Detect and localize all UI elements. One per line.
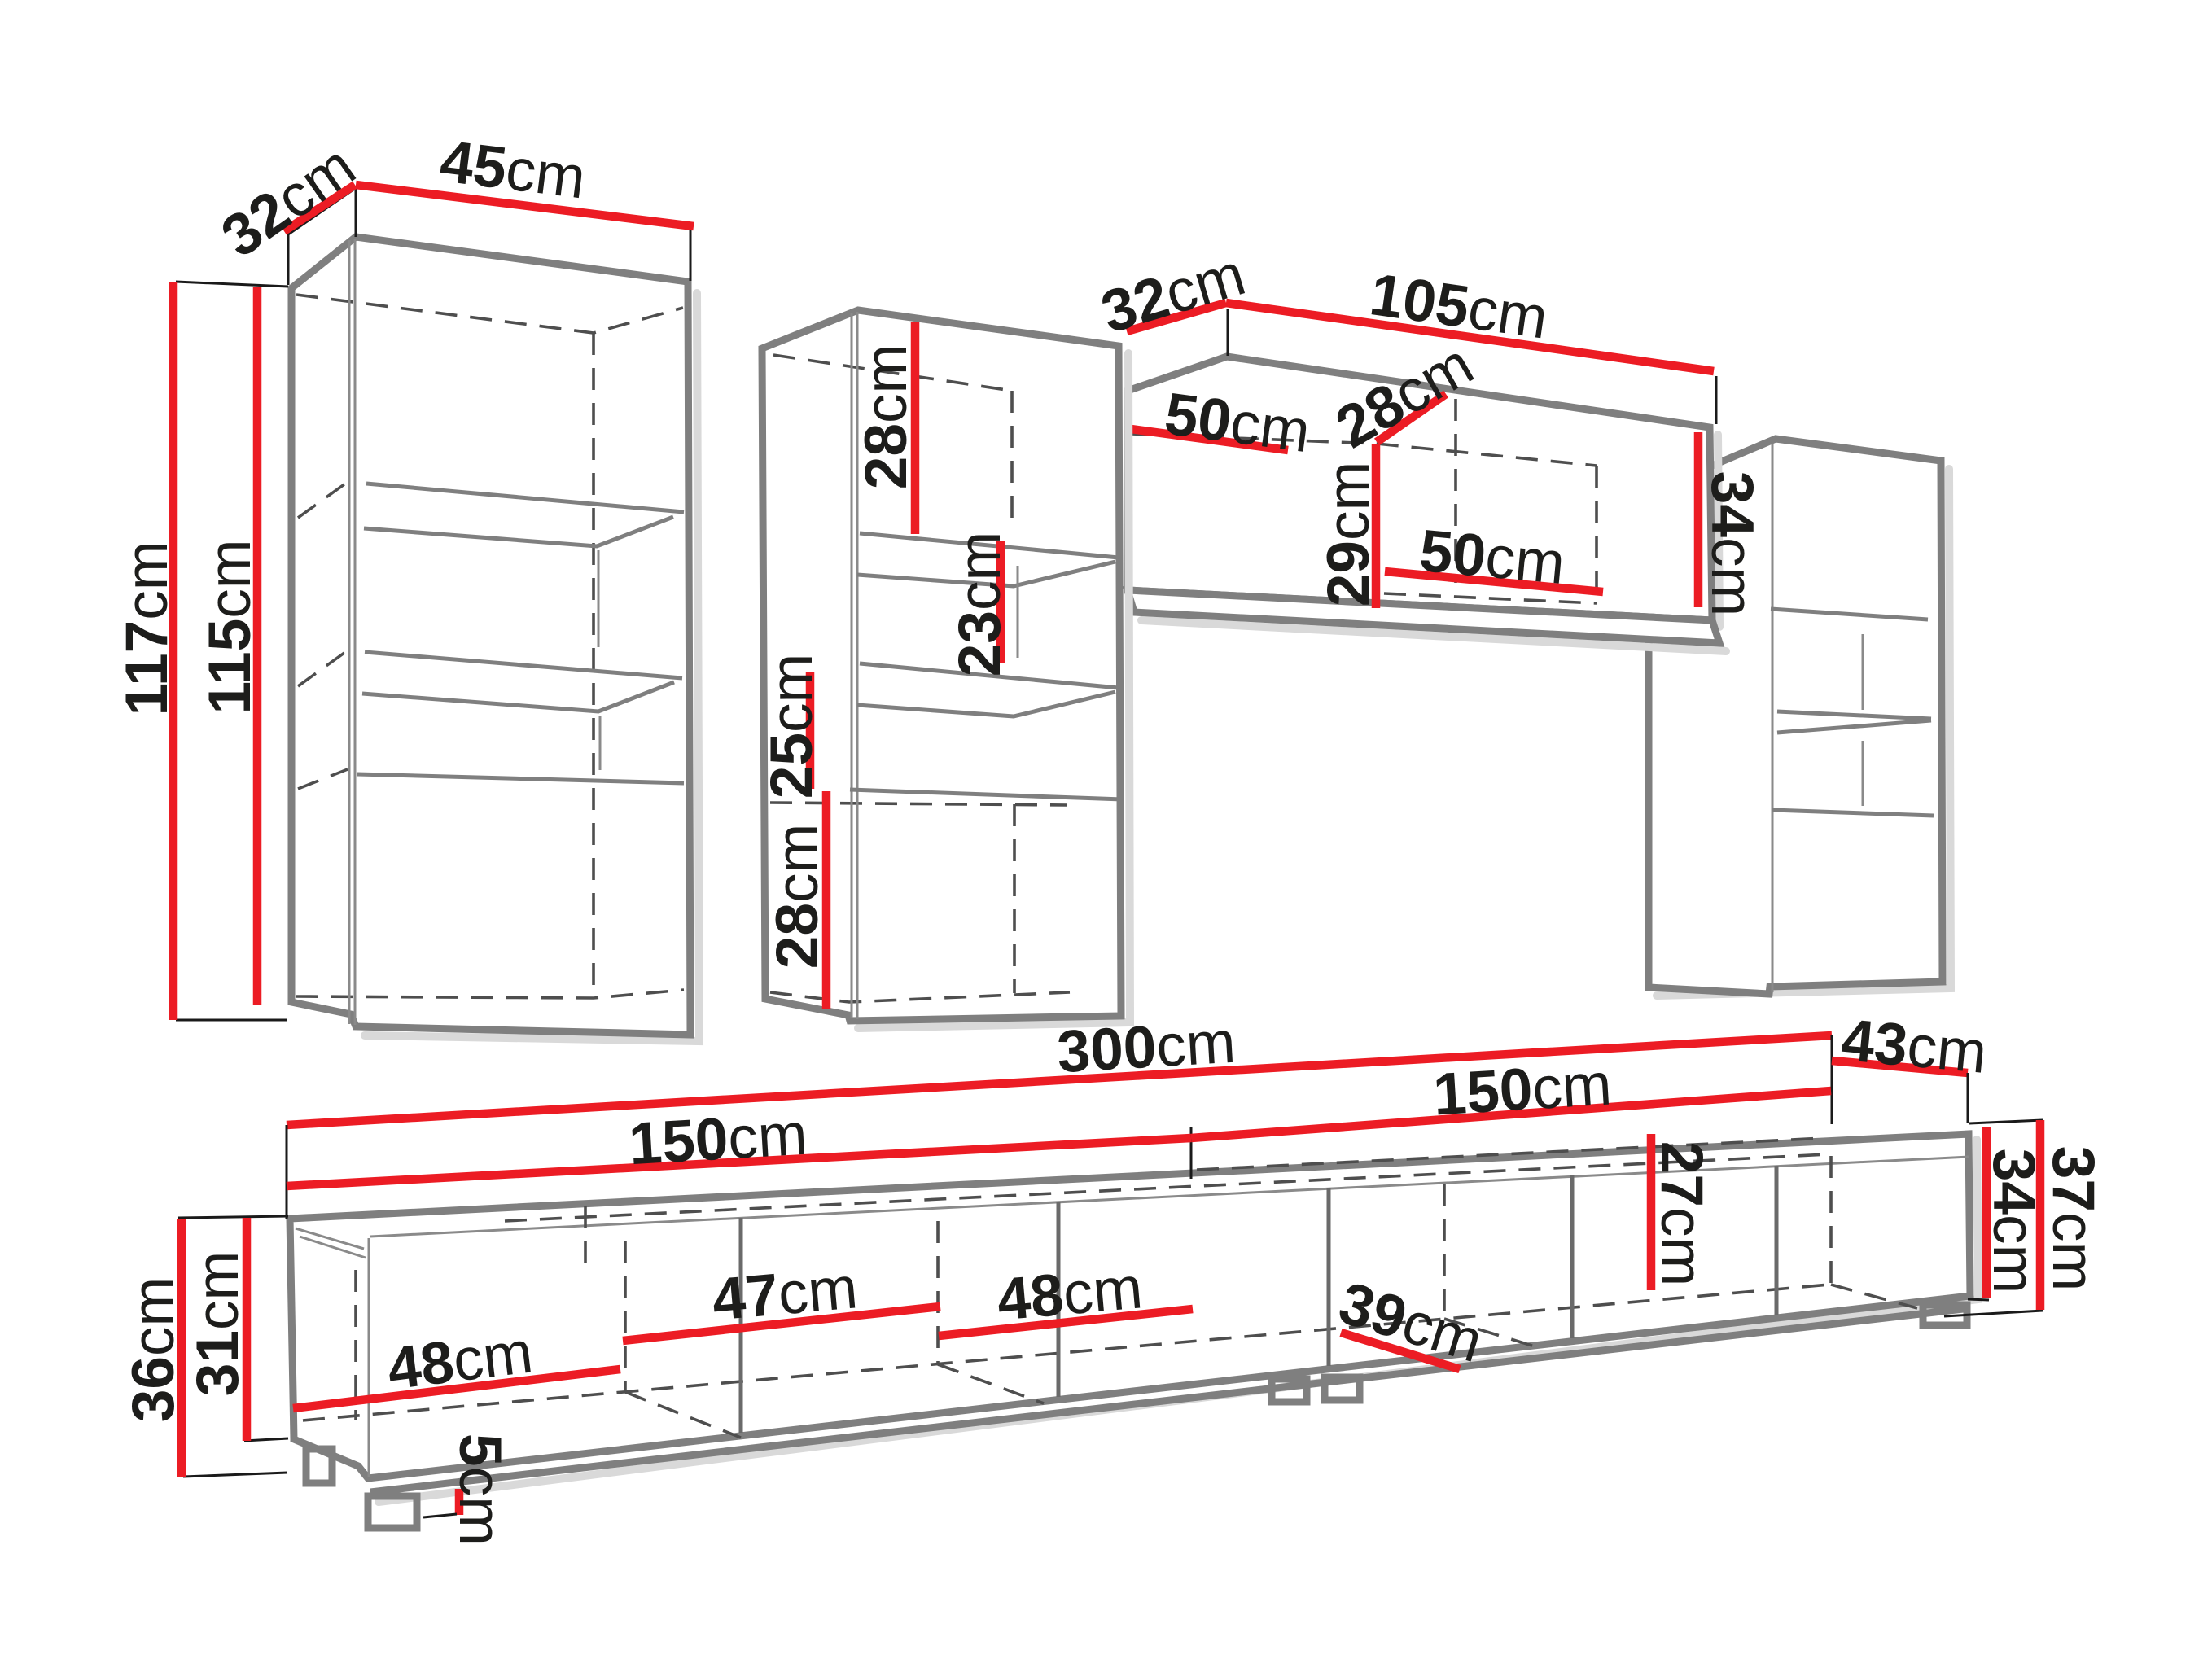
svg-text:50cm: 50cm — [1417, 517, 1567, 596]
svg-text:47cm: 47cm — [710, 1254, 861, 1333]
svg-text:31cm: 31cm — [185, 1251, 251, 1397]
svg-text:37cm: 37cm — [2041, 1146, 2107, 1292]
svg-text:25cm: 25cm — [759, 654, 825, 799]
svg-text:150cm: 150cm — [627, 1101, 808, 1176]
svg-text:117cm: 117cm — [114, 541, 180, 716]
svg-text:34cm: 34cm — [1700, 471, 1766, 617]
svg-text:34cm: 34cm — [1982, 1149, 2048, 1294]
svg-text:43cm: 43cm — [1838, 1007, 1989, 1086]
svg-text:29cm: 29cm — [1316, 462, 1382, 607]
svg-text:150cm: 150cm — [1431, 1051, 1614, 1127]
svg-text:27cm: 27cm — [1649, 1141, 1715, 1287]
svg-text:5cm: 5cm — [448, 1434, 514, 1546]
svg-text:300cm: 300cm — [1055, 1009, 1237, 1084]
svg-text:36cm: 36cm — [120, 1277, 186, 1423]
svg-text:115cm: 115cm — [197, 539, 263, 714]
svg-text:48cm: 48cm — [995, 1254, 1145, 1333]
svg-text:23cm: 23cm — [947, 532, 1013, 677]
svg-text:28cm: 28cm — [853, 344, 919, 490]
svg-text:28cm: 28cm — [764, 824, 830, 970]
